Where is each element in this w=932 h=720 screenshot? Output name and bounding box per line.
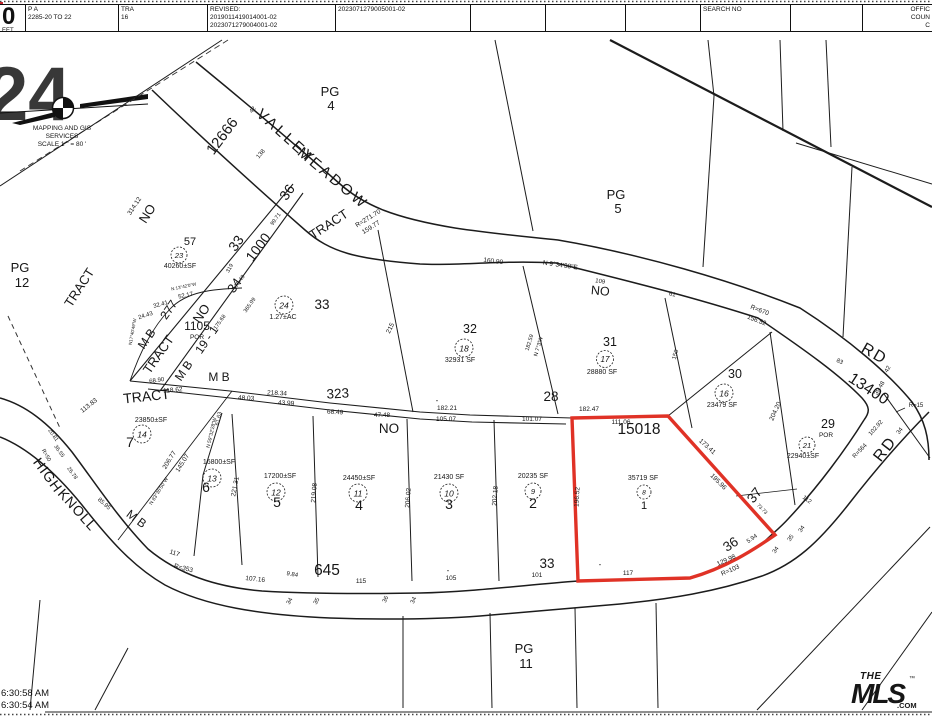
lot-number: 18	[459, 343, 469, 353]
map-labels: MAPPING AND GISSERVICESSCALE 1 " = 80 'P…	[11, 84, 924, 671]
map-label: -	[436, 396, 439, 405]
office-line-2: COUN	[865, 14, 930, 22]
map-label: 34	[410, 596, 419, 605]
lot-number: 13	[207, 473, 217, 483]
map-label: 7	[126, 434, 134, 450]
sheet-cell: 0 EET	[0, 5, 25, 31]
map-label: 4	[327, 98, 334, 113]
map-label: 61	[668, 291, 676, 298]
map-label: 196.52	[573, 486, 581, 507]
map-label: 5.94	[746, 533, 760, 545]
map-label: 43.99	[278, 400, 295, 408]
map-label: 138	[256, 148, 267, 160]
pa-label: P A	[28, 6, 116, 14]
map-label: 68.49	[327, 409, 344, 417]
empty-cell-1	[470, 5, 545, 31]
pa-value: 2285-20 TO 22	[28, 14, 116, 22]
map-label: SCALE 1 " = 80 '	[38, 141, 87, 148]
map-label: 32931 SF	[445, 357, 475, 364]
map-label: MAPPING AND GIS	[33, 125, 92, 132]
map-label: 150	[672, 348, 681, 360]
map-label: RD	[870, 433, 900, 465]
map-label: N 13°42'0"W	[171, 281, 198, 291]
map-label: 218.34	[267, 389, 288, 397]
lot-number: 14	[137, 429, 147, 439]
map-label: 107.16	[245, 575, 266, 584]
map-label: 115	[356, 578, 367, 585]
doc-number: 2023071279005001-02	[338, 6, 468, 14]
map-label: 35	[787, 533, 796, 542]
map-label: PG	[607, 187, 626, 202]
lot-number: 8	[642, 490, 646, 497]
map-label: 28	[543, 389, 558, 404]
map-label: 36	[276, 181, 298, 203]
map-label: 36	[720, 534, 741, 555]
map-label: KNOLL	[55, 485, 101, 534]
map-label: 34	[896, 426, 905, 435]
map-label: NO	[379, 421, 399, 436]
map-label: 4	[355, 497, 363, 513]
map-label: 48.03	[238, 395, 255, 403]
map-label: 22940±SF	[787, 453, 819, 460]
map-label: 61.63	[215, 411, 224, 426]
map-label: 35719 SF	[628, 475, 658, 482]
lot-number: 10	[444, 488, 454, 498]
map-label: 105.07	[436, 416, 456, 423]
search-no-label: SEARCH NO	[703, 6, 788, 14]
pa-cell: P A 2285-20 TO 22	[25, 5, 118, 31]
map-label: R=15	[909, 403, 924, 409]
map-label: SERVICES	[46, 133, 79, 140]
parcel-map-svg: 24	[0, 0, 932, 720]
lot-number: 23	[174, 251, 184, 260]
map-label: 34	[772, 545, 781, 554]
map-label: 160.90	[483, 257, 504, 266]
map-label: 113.83	[79, 397, 99, 415]
map-label: 182.59	[525, 334, 536, 352]
map-label: 202.18	[491, 485, 499, 506]
lot-number: 12	[271, 487, 281, 497]
map-label: 182.47	[579, 406, 599, 413]
map-label: 47.48	[374, 412, 391, 419]
map-label: 21430 SF	[434, 474, 464, 481]
map-label: 32	[463, 322, 477, 336]
map-label: 35	[313, 597, 322, 606]
map-label: 23850±SF	[135, 417, 167, 424]
map-label: 101	[532, 572, 543, 579]
map-label: PG	[11, 260, 30, 275]
map-label: 17200±SF	[264, 473, 296, 480]
lot-lines	[0, 40, 932, 710]
map-label: 75.49	[234, 274, 247, 289]
map-label: 16800±SF	[203, 459, 235, 466]
map-label: 118.62	[163, 386, 183, 395]
map-label: 33	[314, 297, 329, 312]
map-label: 34	[286, 597, 295, 606]
map-label: 12666	[203, 115, 242, 159]
revised-label: REVISED:	[210, 6, 333, 14]
highlighted-parcel	[572, 416, 775, 581]
tra-cell: TRA 16	[118, 5, 207, 31]
map-label: 2	[529, 495, 537, 511]
map-label: PG	[515, 641, 534, 656]
map-label: 42	[884, 365, 893, 374]
search-no-cell: SEARCH NO	[700, 5, 790, 31]
map-label: M B	[208, 370, 229, 384]
map-label: 20.81	[46, 428, 59, 443]
map-label: 117	[168, 549, 180, 559]
map-label: 1.27±AC	[269, 314, 296, 321]
map-label: 40260±SF	[164, 263, 196, 270]
tra-value: 16	[121, 14, 205, 22]
map-label: 34	[798, 524, 807, 533]
map-label: 11	[519, 656, 533, 671]
map-label: 24.43	[138, 311, 155, 322]
doc-number-cell: 2023071279005001-02	[335, 5, 470, 31]
map-label: 9.84	[286, 571, 299, 579]
map-label: -	[599, 560, 602, 569]
empty-cell-3	[625, 5, 700, 31]
timestamp-1: 6:30:58 AM	[1, 688, 49, 699]
map-label: 323	[326, 385, 349, 401]
sheet-label: EET	[2, 28, 23, 31]
sheet-number: 0	[2, 6, 23, 28]
map-label: 85.95	[96, 497, 112, 512]
lot-number: 24	[278, 300, 289, 310]
map-label: 206.02	[404, 487, 412, 508]
revised-value-2: 2023071279004001-02	[210, 22, 333, 30]
map-label: POR	[819, 432, 833, 439]
map-label: NO	[590, 283, 610, 299]
map-label: 219.08	[310, 482, 318, 503]
lot-number: 21	[802, 441, 811, 450]
revised-cell: REVISED: 2019011419014001-02 20230712790…	[207, 5, 335, 31]
map-label: 33	[539, 556, 554, 571]
map-label: 83	[835, 358, 844, 367]
map-label: 111.06	[612, 419, 631, 426]
lot-number: 16	[719, 388, 729, 398]
empty-cell-2	[545, 5, 625, 31]
map-label: TRACT	[61, 265, 97, 310]
office-line-1: OFFIC	[865, 6, 930, 14]
map-label: 365.99	[243, 297, 258, 314]
map-label: 182.21	[437, 405, 457, 412]
map-label: MEADOW	[294, 144, 372, 213]
map-label: 36.55	[52, 444, 65, 459]
office-line-3: C	[865, 22, 930, 30]
map-label: 20235 SF	[518, 473, 548, 480]
mls-logo-com: .COM	[897, 701, 917, 710]
map-label: 215	[385, 322, 396, 335]
map-label: 31	[603, 335, 617, 349]
office-cell: OFFIC COUN C	[862, 5, 932, 31]
parcel-map: 24	[0, 0, 932, 720]
map-label: 12	[15, 275, 29, 290]
map-label: N 9°34'38"E	[542, 259, 578, 272]
map-label: 36	[382, 595, 391, 604]
revised-value-1: 2019011419014001-02	[210, 14, 333, 22]
map-label: 33	[225, 232, 247, 254]
map-label: -	[447, 566, 450, 575]
map-label: 1000	[242, 230, 274, 265]
map-label: R=353	[173, 563, 194, 575]
map-label: R=564	[852, 442, 869, 459]
map-label: 102.92	[868, 419, 885, 437]
map-label: 23479 SF	[707, 402, 737, 409]
map-label: 5	[614, 201, 621, 216]
lot-number: 17	[601, 355, 610, 364]
mls-logo: THE MLS ™ .COM	[851, 671, 917, 710]
pg12-dashed-boundary	[8, 316, 60, 428]
map-label: TRACT	[306, 206, 351, 242]
map-label: 221.31	[230, 476, 241, 497]
map-label: 645	[314, 562, 340, 579]
map-label: 24450±SF	[343, 475, 375, 482]
map-label: N 83°36'50"W	[148, 476, 170, 506]
map-label: 30	[728, 367, 742, 381]
map-label: 112	[801, 495, 813, 506]
map-label: 105	[446, 575, 457, 582]
map-label: 26.78	[65, 466, 78, 481]
map-label: 57	[184, 236, 196, 248]
map-label: 195.96	[709, 472, 728, 491]
title-block: 0 EET P A 2285-20 TO 22 TRA 16 REVISED: …	[0, 4, 932, 32]
map-label: PG	[321, 84, 340, 99]
map-label: 204.20	[768, 401, 783, 422]
map-label: 52.17	[178, 291, 195, 300]
map-label: 117	[623, 570, 634, 577]
map-label: 28880 SF	[587, 369, 617, 376]
empty-cell-4	[790, 5, 862, 31]
timestamp-2: 6:30:54 AM	[1, 700, 49, 711]
map-label: M B	[172, 358, 196, 384]
map-label: 101.07	[522, 416, 542, 423]
mls-logo-tm: ™	[909, 675, 915, 682]
lot-number: 11	[354, 488, 363, 498]
map-label: 1	[641, 500, 647, 512]
map-label: 29	[821, 417, 835, 431]
tra-label: TRA	[121, 6, 205, 14]
